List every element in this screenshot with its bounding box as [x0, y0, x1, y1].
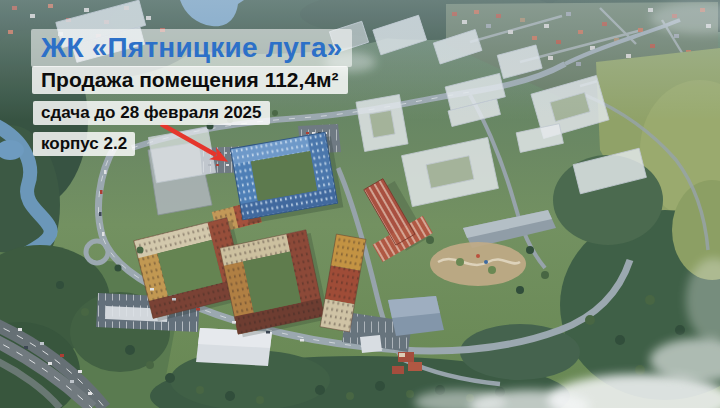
- building-number-label: корпус 2.2: [33, 132, 135, 156]
- completion-date-label: сдача до 28 февраля 2025: [33, 101, 270, 125]
- listing-photo: ЖК «Пятницкие луга» Продажа помещения 11…: [0, 0, 720, 408]
- offer-area-label: Продажа помещения 112,4м²: [32, 66, 348, 94]
- complex-title: ЖК «Пятницкие луга»: [31, 29, 352, 67]
